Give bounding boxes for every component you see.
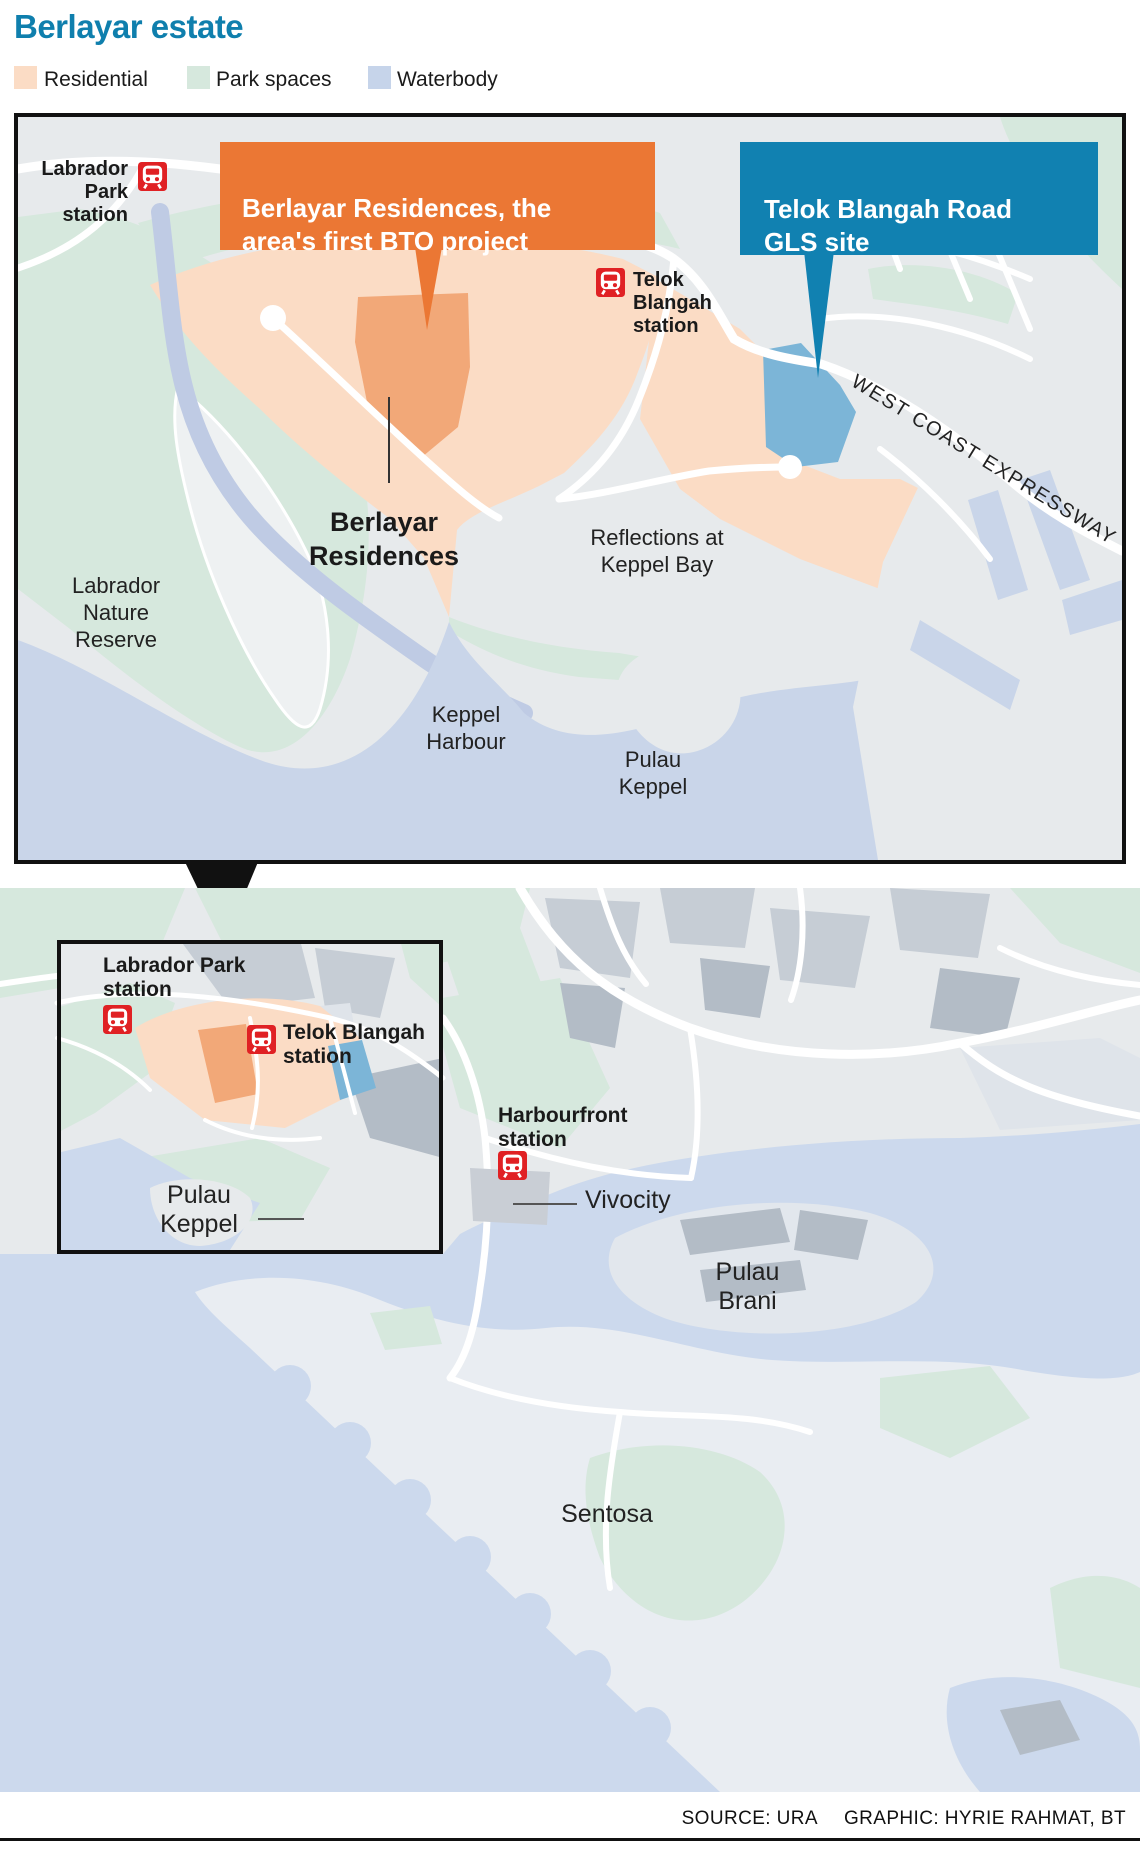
detail-map: WEST COAST EXPRESSWAY Berlayar Residence… xyxy=(14,113,1126,864)
mrt-icon xyxy=(498,1151,527,1180)
gls-callout-text: Telok Blangah Road GLS site xyxy=(764,194,1012,257)
berlayar-leader-line xyxy=(388,397,390,483)
sentosa-label: Sentosa xyxy=(552,1500,662,1529)
context-map: Labrador Park station Telok Blangah stat… xyxy=(0,888,1140,1792)
mrt-icon xyxy=(103,1005,132,1034)
credit-text: GRAPHIC: HYRIE RAHMAT, BT xyxy=(844,1808,1126,1829)
labrador-park-station-label: Labrador Park station xyxy=(38,158,128,227)
telok-blangah-station-label: Telok Blangah station xyxy=(633,269,712,338)
mrt-icon xyxy=(247,1025,276,1054)
source-credit: SOURCE: URAGRAPHIC: HYRIE RAHMAT, BT xyxy=(682,1808,1126,1830)
telok-blangah-station-label: Telok Blangah station xyxy=(283,1021,425,1069)
mrt-icon xyxy=(596,268,625,297)
reflections-label: Reflections at Keppel Bay xyxy=(557,524,757,578)
site-marker-gls xyxy=(778,455,802,479)
labrador-park-station-label: Labrador Park station xyxy=(103,954,245,1002)
bto-callout: Berlayar Residences, the area's first BT… xyxy=(220,142,655,250)
legend-label-waterbody: Waterbody xyxy=(397,68,498,92)
legend-swatch-residential xyxy=(14,66,37,89)
page-title: Berlayar estate xyxy=(14,8,243,46)
harbourfront-station-label: Harbourfront station xyxy=(498,1104,628,1152)
legend-swatch-park xyxy=(187,66,210,89)
pulau-keppel-leader-line xyxy=(258,1218,304,1220)
mrt-icon xyxy=(138,162,167,191)
pulau-brani-label: Pulau Brani xyxy=(690,1258,805,1316)
vivocity-leader-line xyxy=(513,1203,577,1205)
legend-label-park: Park spaces xyxy=(216,68,332,92)
source-text: SOURCE: URA xyxy=(682,1808,818,1829)
pulau-keppel-label: Pulau Keppel xyxy=(578,746,728,800)
berlayar-residences-label: Berlayar Residences xyxy=(264,505,504,573)
legend-label-residential: Residential xyxy=(44,68,148,92)
bottom-rule xyxy=(0,1838,1140,1841)
site-marker-berlayar xyxy=(260,305,286,331)
keppel-harbour-label: Keppel Harbour xyxy=(391,701,541,755)
nature-reserve-label: Labrador Nature Reserve xyxy=(41,572,191,653)
legend-swatch-waterbody xyxy=(368,66,391,89)
bto-callout-text: Berlayar Residences, the area's first BT… xyxy=(242,193,551,256)
gls-callout: Telok Blangah Road GLS site xyxy=(740,142,1098,255)
pulau-keppel-label: Pulau Keppel xyxy=(143,1181,255,1239)
vivocity-label: Vivocity xyxy=(585,1186,671,1215)
